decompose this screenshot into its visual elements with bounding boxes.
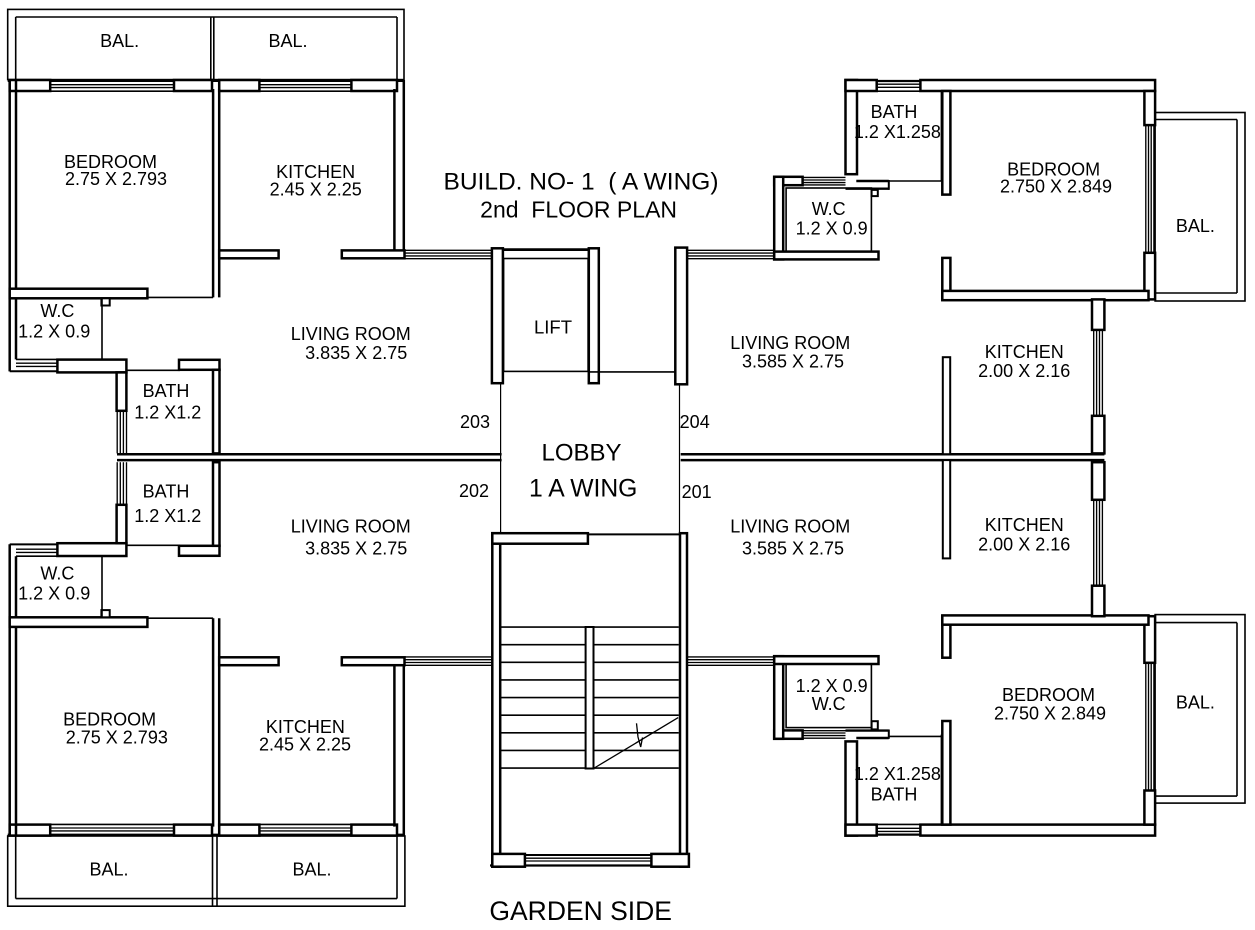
svg-text:BATH: BATH [143, 381, 190, 401]
svg-text:W.C: W.C [40, 564, 74, 584]
svg-text:1.2 X 0.9: 1.2 X 0.9 [796, 676, 868, 696]
svg-text:BEDROOM: BEDROOM [1002, 685, 1095, 705]
svg-text:3.585 X 2.75: 3.585 X 2.75 [742, 352, 844, 372]
svg-text:2nd FLOOR PLAN: 2nd FLOOR PLAN [480, 197, 677, 223]
svg-text:1.2 X1.258: 1.2 X1.258 [854, 764, 941, 784]
svg-text:2.00 X 2.16: 2.00 X 2.16 [978, 535, 1070, 555]
svg-text:2.45 X 2.25: 2.45 X 2.25 [259, 735, 351, 755]
svg-text:2.75 X 2.793: 2.75 X 2.793 [65, 169, 167, 189]
svg-text:2.45 X 2.25: 2.45 X 2.25 [270, 180, 362, 200]
svg-text:2.750 X 2.849: 2.750 X 2.849 [1000, 177, 1112, 197]
svg-text:1.2 X 0.9: 1.2 X 0.9 [796, 218, 868, 238]
svg-text:2.75 X 2.793: 2.75 X 2.793 [66, 728, 168, 748]
svg-text:BAL.: BAL. [292, 860, 331, 880]
svg-text:2.750 X 2.849: 2.750 X 2.849 [994, 704, 1106, 724]
svg-text:1.2 X1.258: 1.2 X1.258 [854, 122, 941, 142]
svg-text:BEDROOM: BEDROOM [63, 710, 156, 730]
svg-text:LIVING ROOM: LIVING ROOM [291, 324, 411, 344]
svg-text:1.2 X1.2: 1.2 X1.2 [134, 506, 201, 526]
svg-text:BAL.: BAL. [1176, 216, 1215, 236]
svg-text:BAL.: BAL. [89, 860, 128, 880]
svg-text:BUILD. NO- 1 ( A WING): BUILD. NO- 1 ( A WING) [444, 169, 719, 196]
svg-text:KITCHEN: KITCHEN [985, 515, 1064, 535]
svg-text:3.585 X 2.75: 3.585 X 2.75 [742, 539, 844, 559]
svg-text:203: 203 [460, 412, 490, 432]
svg-text:KITCHEN: KITCHEN [985, 342, 1064, 362]
svg-text:1.2 X 0.9: 1.2 X 0.9 [18, 322, 90, 342]
svg-text:BATH: BATH [143, 482, 190, 502]
svg-text:3.835 X 2.75: 3.835 X 2.75 [305, 539, 407, 559]
svg-text:201: 201 [682, 482, 712, 502]
svg-text:3.835 X 2.75: 3.835 X 2.75 [305, 343, 407, 363]
svg-text:BAL.: BAL. [1176, 693, 1215, 713]
svg-text:LIVING ROOM: LIVING ROOM [730, 333, 850, 353]
svg-text:W.C: W.C [812, 199, 846, 219]
svg-text:LIVING ROOM: LIVING ROOM [291, 517, 411, 537]
svg-text:1.2 X1.2: 1.2 X1.2 [134, 403, 201, 423]
svg-text:W.C: W.C [812, 694, 846, 714]
svg-text:1 A WING: 1 A WING [529, 476, 637, 503]
svg-text:W.C: W.C [40, 301, 74, 321]
svg-text:BAL.: BAL. [100, 31, 139, 51]
svg-text:BATH: BATH [871, 102, 918, 122]
svg-text:202: 202 [459, 481, 489, 501]
svg-text:BATH: BATH [871, 784, 918, 804]
svg-text:LOBBY: LOBBY [541, 440, 621, 467]
svg-text:BAL.: BAL. [268, 31, 307, 51]
svg-text:GARDEN SIDE: GARDEN SIDE [489, 896, 672, 926]
svg-text:LIFT: LIFT [534, 317, 572, 338]
svg-text:1.2 X 0.9: 1.2 X 0.9 [18, 584, 90, 604]
svg-text:LIVING ROOM: LIVING ROOM [730, 517, 850, 537]
svg-text:204: 204 [680, 412, 710, 432]
svg-text:2.00 X 2.16: 2.00 X 2.16 [978, 361, 1070, 381]
